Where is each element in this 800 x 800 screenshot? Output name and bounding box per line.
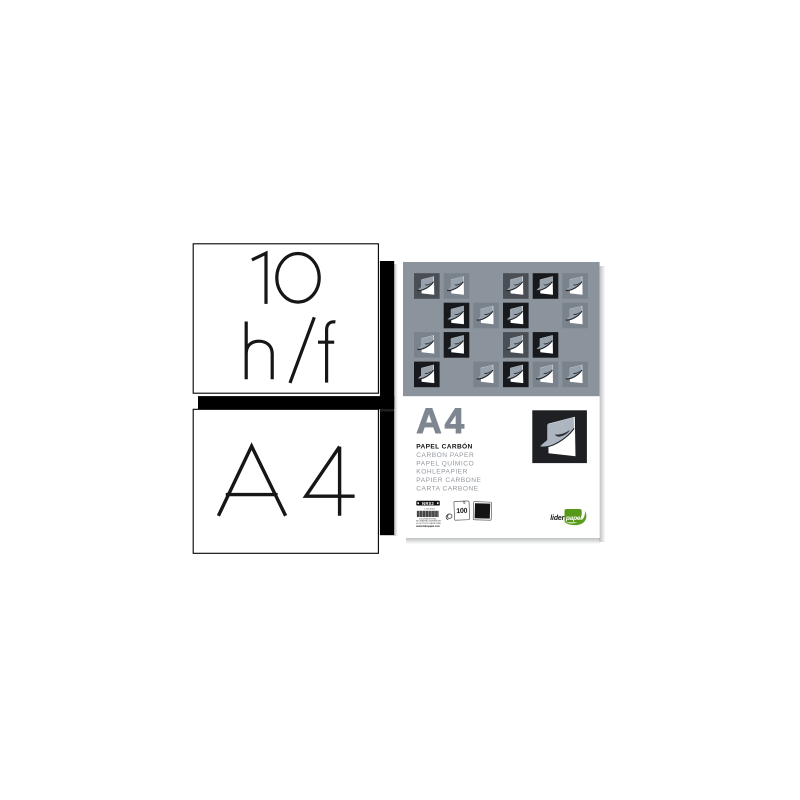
svg-text:1.111 NR02: 1.111 NR02 bbox=[424, 508, 436, 510]
svg-text:CARBON PAPER: CARBON PAPER bbox=[416, 452, 474, 459]
svg-text:CARTA CARBONE: CARTA CARBONE bbox=[416, 485, 478, 492]
svg-text:lider: lider bbox=[550, 515, 564, 522]
svg-text:NR02: NR02 bbox=[422, 501, 434, 506]
svg-text:KOHLEPAPIER: KOHLEPAPIER bbox=[416, 469, 468, 476]
svg-text:100: 100 bbox=[456, 508, 467, 515]
svg-text:PAPEL QUÍMICO: PAPEL QUÍMICO bbox=[416, 458, 474, 467]
svg-text:www.liderpapel.com: www.liderpapel.com bbox=[416, 525, 440, 528]
svg-text:PAPIER CARBONE: PAPIER CARBONE bbox=[416, 477, 481, 484]
svg-text:A4: A4 bbox=[416, 402, 467, 441]
svg-text:PAPEL CARBÓN: PAPEL CARBÓN bbox=[416, 441, 472, 450]
svg-text:papel: papel bbox=[565, 515, 582, 522]
